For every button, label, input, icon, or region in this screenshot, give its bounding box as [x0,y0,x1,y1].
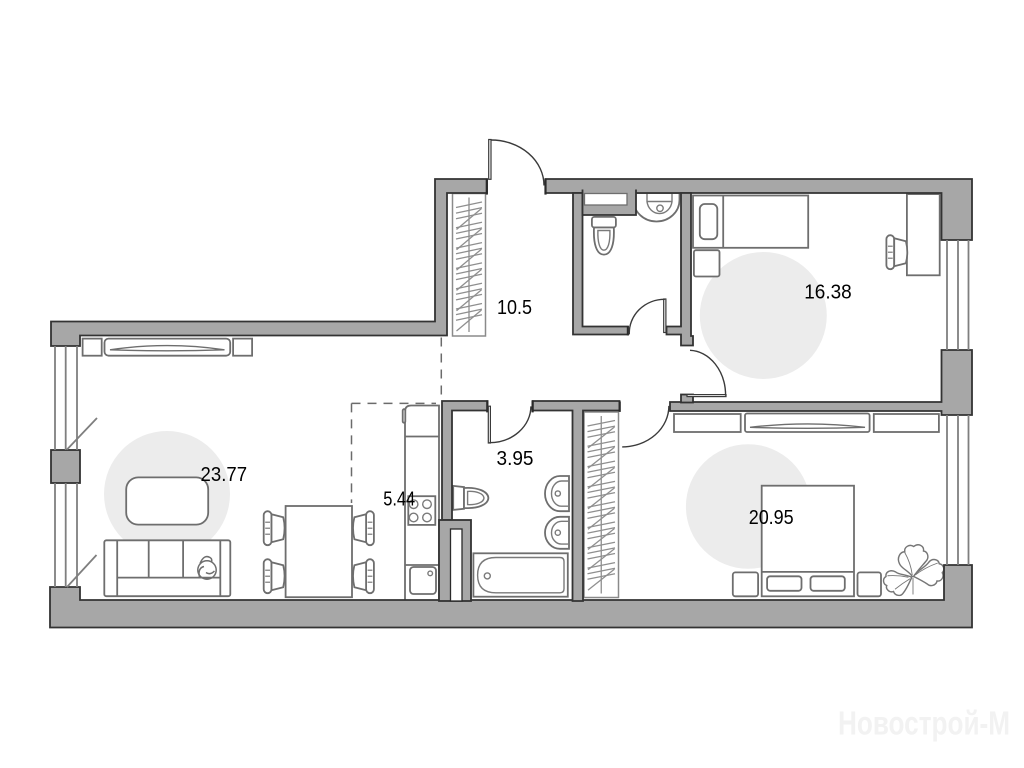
svg-text:23.77: 23.77 [201,463,248,486]
svg-text:16.38: 16.38 [804,281,852,304]
svg-text:5.44: 5.44 [383,487,415,510]
svg-text:3.95: 3.95 [497,447,534,470]
svg-text:20.95: 20.95 [749,506,794,529]
svg-text:10.5: 10.5 [497,296,532,319]
svg-text:Новострой-М: Новострой-М [838,705,1010,742]
